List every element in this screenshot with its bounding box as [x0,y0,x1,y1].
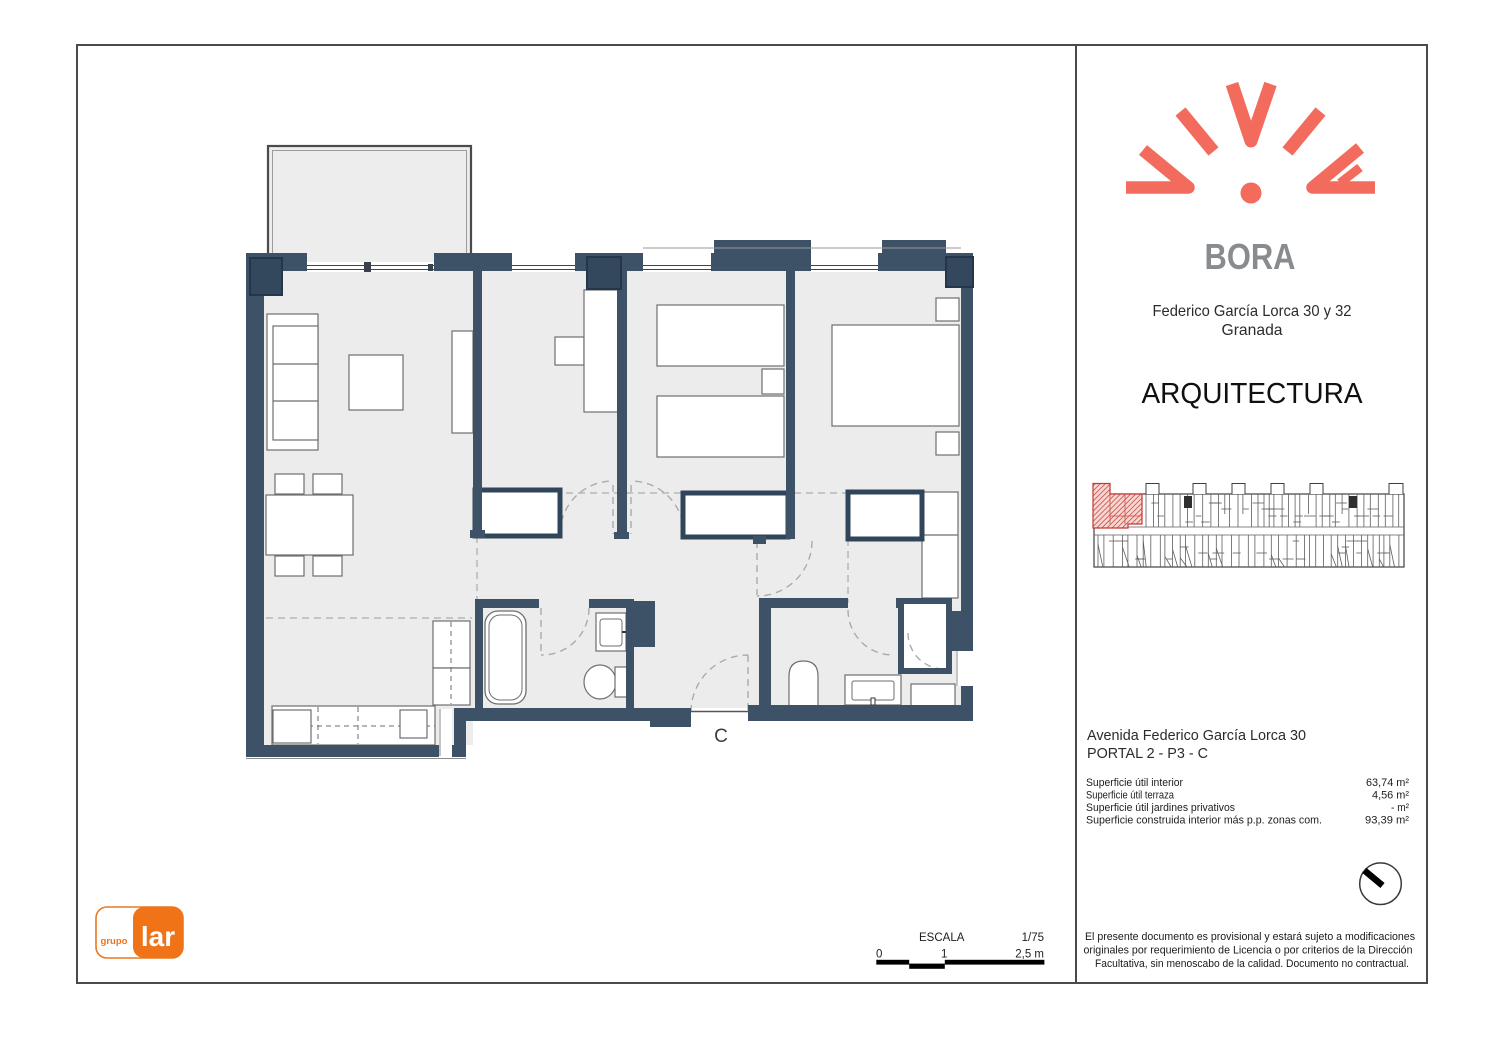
svg-text:originales por requerimiento d: originales por requerimiento de Licencia… [1084,945,1413,957]
svg-text:1/75: 1/75 [1022,932,1044,944]
svg-text:Superficie construida interior: Superficie construida interior más p.p. … [1086,815,1322,827]
svg-text:Federico García Lorca 30 y 32: Federico García Lorca 30 y 32 [1153,303,1352,320]
svg-text:ESCALA: ESCALA [919,932,965,944]
svg-text:0: 0 [876,949,882,961]
svg-text:BORA: BORA [1205,236,1296,277]
svg-text:- m²: - m² [1391,802,1409,814]
svg-text:Superficie útil jardines priva: Superficie útil jardines privativos [1086,802,1235,814]
svg-text:grupo: grupo [101,936,128,947]
svg-text:2,5 m: 2,5 m [1015,949,1044,961]
svg-text:ARQUITECTURA: ARQUITECTURA [1142,378,1363,410]
svg-text:PORTAL 2 - P3 - C: PORTAL 2 - P3 - C [1087,745,1208,762]
svg-text:4,56 m²: 4,56 m² [1372,790,1409,802]
svg-text:Granada: Granada [1222,322,1283,339]
svg-text:Avenida Federico García Lorca: Avenida Federico García Lorca 30 [1087,727,1306,744]
svg-text:El presente documento es provi: El presente documento es provisional y e… [1085,931,1415,943]
svg-text:93,39 m²: 93,39 m² [1365,815,1409,827]
svg-text:Superficie útil interior: Superficie útil interior [1086,777,1183,789]
svg-text:1: 1 [941,949,947,961]
svg-text:lar: lar [141,921,175,952]
svg-text:Superficie útil terraza: Superficie útil terraza [1086,790,1175,802]
svg-text:Facultativa, sin menoscabo de: Facultativa, sin menoscabo de la calidad… [1095,958,1409,970]
svg-text:63,74 m²: 63,74 m² [1366,777,1409,789]
svg-text:C: C [714,726,728,747]
